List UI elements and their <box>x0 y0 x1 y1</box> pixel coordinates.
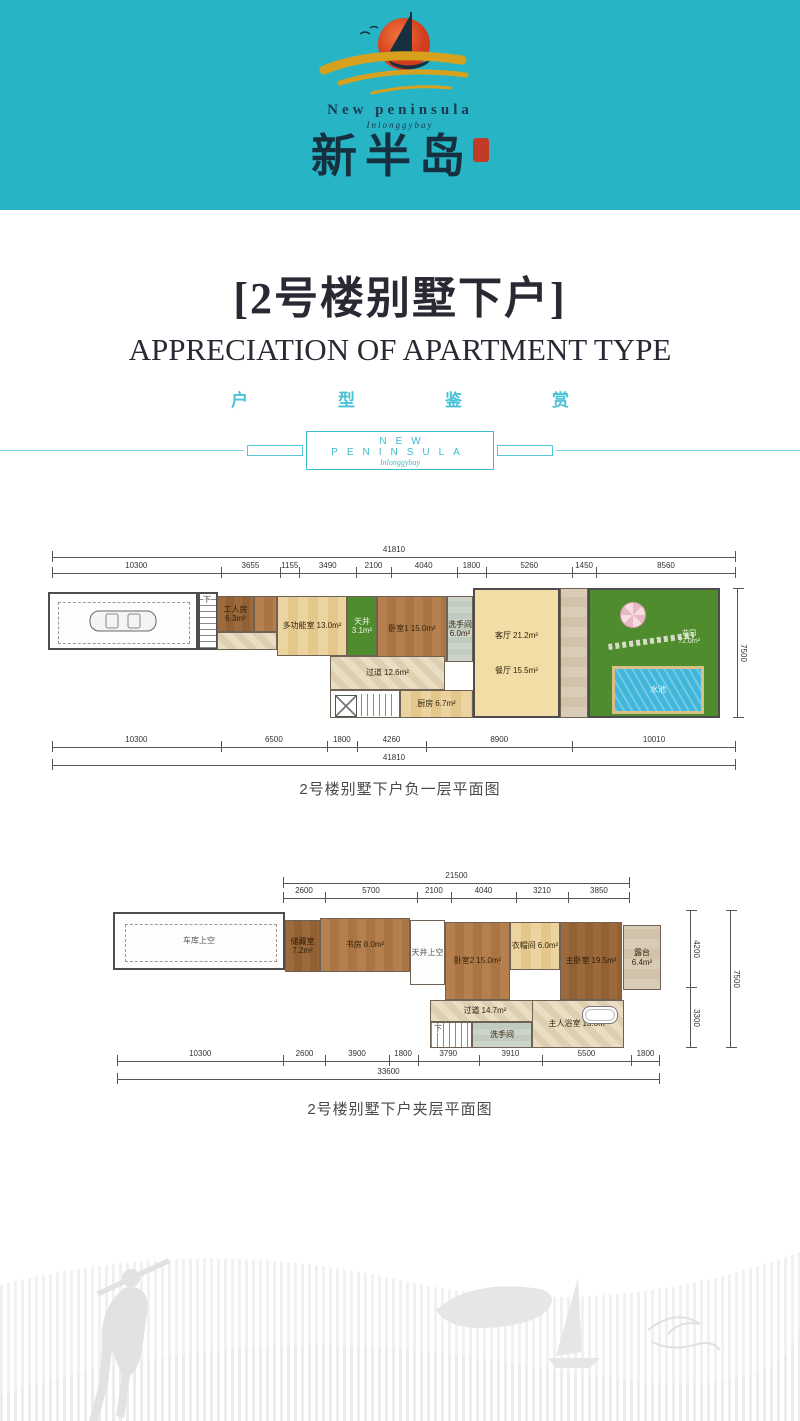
swimming-pool: 水池 <box>612 666 704 714</box>
room-name: 主卧室 <box>566 956 590 965</box>
dim-value: 5260 <box>486 561 572 570</box>
footer-waves-graphic <box>0 1230 800 1421</box>
dim-segment: 3790 <box>418 1050 479 1066</box>
dim-value: 1800 <box>389 1049 418 1058</box>
room-area: 6.0m² <box>538 941 558 950</box>
room-master-bedroom: 主卧室 19.5m² <box>560 922 622 1000</box>
room-area: 6.0m² <box>450 629 470 638</box>
dim-segment: 10300 <box>52 562 221 578</box>
room-washroom-1: 洗手间 6.0m² <box>447 596 473 662</box>
section-divider: NEW PENINSULA Inlonggybay <box>0 430 800 470</box>
pool-label: 水池 <box>650 685 666 694</box>
room-bedroom2: 卧室2 15.0m² <box>445 922 510 1000</box>
dim-value: 8900 <box>426 735 572 744</box>
dim-segment: 7500 <box>733 588 751 718</box>
dim-value: 3910 <box>479 1049 542 1058</box>
dim-segment: 1800 <box>389 1050 418 1066</box>
plan1-right-dim: 7500 <box>733 588 751 718</box>
room-area: 6.7m² <box>435 699 455 708</box>
dim-segment: 3910 <box>479 1050 542 1066</box>
dim-segment: 5500 <box>542 1050 631 1066</box>
dim-value: 3900 <box>325 1049 388 1058</box>
dim-segment: 8900 <box>426 736 572 752</box>
garage-parking-outline <box>58 602 190 644</box>
dim-value: 4260 <box>357 735 427 744</box>
divider-line-left <box>0 450 244 451</box>
brand-logo: New peninsula Inlonggybay 新半岛 <box>0 8 800 180</box>
dim-segment: 10010 <box>572 736 736 752</box>
dim-value: 3210 <box>516 886 568 895</box>
room-multifunction: 多功能室 13.0m² <box>277 596 347 656</box>
dim-segment: 4040 <box>391 562 457 578</box>
room-terrace: 露台 6.4m² <box>623 925 661 990</box>
dim-segment: 7500 <box>726 910 744 1048</box>
dim-value: 1155 <box>280 561 299 570</box>
dim-segment: 10300 <box>52 736 221 752</box>
plan1-caption: 2号楼别墅下户负一层平面图 <box>0 778 800 799</box>
brand-name-cn-row: 新半岛 <box>311 134 489 180</box>
dim-value: 4040 <box>451 886 516 895</box>
dim-value: 4200 <box>692 940 701 958</box>
red-seal-icon <box>473 138 489 162</box>
dim-segment: 1800 <box>327 736 356 752</box>
dim-segment: 33600 <box>117 1068 660 1084</box>
bathtub-icon <box>582 1006 618 1024</box>
plan2-top-dims: 260057002100404032103850 <box>283 887 630 903</box>
header-banner: New peninsula Inlonggybay 新半岛 <box>0 0 800 210</box>
dim-segment: 3655 <box>221 562 281 578</box>
room-garage <box>48 592 198 650</box>
dim-segment: 2100 <box>417 887 451 903</box>
dim-value: 4040 <box>391 561 457 570</box>
room-corridor-2: 过道 14.7m² <box>430 1000 540 1022</box>
plan1-floorplan: 下 工人房 6.3m² 多功能室 13.0m² 天井 3.1m² 卧室1 15.… <box>48 588 720 718</box>
dim-segment: 1450 <box>572 562 596 578</box>
dim-segment: 3490 <box>299 562 356 578</box>
room-name: 餐厅 <box>495 666 511 675</box>
brand-name-cn: 新半岛 <box>311 134 473 180</box>
room-area: 6.4m² <box>632 958 652 967</box>
dim-segment: 8560 <box>596 562 736 578</box>
room-area: 6.3m² <box>225 614 245 623</box>
brand-name-en: New peninsula <box>327 102 473 119</box>
plan1-bottom-dims: 10300650018004260890010010 <box>52 736 736 752</box>
stairs-icon <box>361 694 397 716</box>
dim-segment: 10300 <box>117 1050 283 1066</box>
room-area: 21.2m² <box>513 631 538 640</box>
dim-value: 1800 <box>327 735 356 744</box>
dim-value: 3790 <box>418 1049 479 1058</box>
dim-value: 1800 <box>457 561 486 570</box>
divider-badge-label: NEW PENINSULA <box>307 436 493 458</box>
plan2-right-dims: 42003300 <box>686 910 704 1048</box>
room-area: 3.1m² <box>352 626 372 635</box>
dim-value: 8560 <box>596 561 736 570</box>
room-name: 衣帽间 <box>512 941 536 950</box>
room-stairwell-1: 下 <box>198 592 218 650</box>
dim-value: 1800 <box>631 1049 660 1058</box>
room-kitchen: 厨房 6.7m² <box>400 690 473 718</box>
dim-segment: 3300 <box>686 987 704 1048</box>
dim-segment: 41810 <box>52 546 736 562</box>
dim-value: 2600 <box>283 886 325 895</box>
plan2-bottom-dims: 103002600390018003790391055001800 <box>117 1050 660 1066</box>
room-study: 书房 8.0m² <box>320 918 410 972</box>
room-corridor-1: 过道 12.6m² <box>330 656 445 690</box>
dim-value: 2100 <box>417 886 451 895</box>
dim-value: 7500 <box>732 970 741 988</box>
plan2-floorplan: 车库上空 储藏室 7.2m² 书房 8.0m² 天井上空 卧室2 15.0m² … <box>110 908 670 1048</box>
room-stairwell-2: 下 <box>430 1022 472 1048</box>
garden-label: 花园 72.0m² <box>678 630 700 647</box>
brochure-page: New peninsula Inlonggybay 新半岛 [2号楼别墅下户] … <box>0 0 800 1421</box>
room-area: 7.2m² <box>292 946 312 955</box>
room-area: 19.5m² <box>592 956 617 965</box>
room-area: 72.0m² <box>678 638 700 646</box>
room-storage: 储藏室 7.2m² <box>285 920 320 972</box>
dim-segment: 1800 <box>457 562 486 578</box>
room-area: 8.0m² <box>364 940 384 949</box>
dim-segment: 1155 <box>280 562 299 578</box>
elevator-icon <box>335 695 357 717</box>
plan2-total-bottom-dim: 33600 <box>117 1068 660 1084</box>
dim-segment: 2100 <box>356 562 390 578</box>
room-breakfast-nook <box>254 596 277 632</box>
umbrella-icon <box>620 602 646 628</box>
dim-value: 10300 <box>52 735 221 744</box>
room-area: 15.0m² <box>476 956 501 965</box>
room-name: 洗手间 <box>490 1030 514 1039</box>
room-name: 储藏室 <box>291 937 315 946</box>
room-master-bath: 主人浴室 13.0m² <box>532 1000 624 1048</box>
dim-segment: 3210 <box>516 887 568 903</box>
dim-value: 3300 <box>692 1009 701 1027</box>
room-name: 天井 <box>354 617 370 626</box>
room-garage-void: 车库上空 <box>113 912 285 970</box>
dim-segment: 4040 <box>451 887 516 903</box>
room-hall-tile <box>217 632 277 650</box>
dim-segment: 2600 <box>283 887 325 903</box>
room-name: 主人浴室 <box>549 1019 581 1028</box>
room-name: 天井上空 <box>412 948 444 957</box>
room-living-dining: 客厅 21.2m² 餐厅 15.5m² <box>473 588 560 718</box>
dim-segment: 4200 <box>686 910 704 987</box>
plan2-caption: 2号楼别墅下户夹层平面图 <box>0 1098 800 1119</box>
room-area: 12.6m² <box>384 668 409 677</box>
room-area: 14.7m² <box>482 1006 507 1015</box>
dim-segment: 5260 <box>486 562 572 578</box>
dim-value: 2600 <box>283 1049 325 1058</box>
dim-value: 41810 <box>52 545 736 554</box>
room-bedroom1: 卧室1 15.0m² <box>377 596 447 662</box>
room-name: 卧室2 <box>454 956 474 965</box>
divider-ornament-left <box>247 445 303 456</box>
room-worker: 工人房 6.3m² <box>217 596 254 632</box>
divider-badge-script: Inlonggybay <box>307 458 493 467</box>
dim-value: 10300 <box>117 1049 283 1058</box>
page-subtitle-en: APPRECIATION OF APARTMENT TYPE <box>0 332 800 368</box>
dim-value: 5500 <box>542 1049 631 1058</box>
plan2-right-total-dim: 7500 <box>726 910 744 1048</box>
room-atrium-void: 天井上空 <box>410 920 445 985</box>
divider-ornament-right <box>497 445 553 456</box>
plan1-total-top-dim: 41810 <box>52 546 736 562</box>
dim-value: 3850 <box>568 886 630 895</box>
dim-segment: 5700 <box>325 887 417 903</box>
room-name: 多功能室 <box>283 621 315 630</box>
room-area: 15.0m² <box>411 624 436 633</box>
dim-value: 2100 <box>356 561 390 570</box>
dim-segment: 4260 <box>357 736 427 752</box>
room-garden: 花园 72.0m² 水池 <box>588 588 720 718</box>
dim-segment: 3850 <box>568 887 630 903</box>
room-name: 客厅 <box>495 631 511 640</box>
living-label: 客厅 21.2m² <box>495 631 538 640</box>
dim-value: 33600 <box>117 1067 660 1076</box>
dim-value: 10300 <box>52 561 221 570</box>
room-name: 车库上空 <box>183 936 215 945</box>
dim-value: 10010 <box>572 735 736 744</box>
room-washroom-2: 洗手间 <box>472 1022 532 1048</box>
divider-badge: NEW PENINSULA Inlonggybay <box>306 431 494 470</box>
room-name: 工人房 <box>224 605 248 614</box>
footer-watermark <box>0 1230 800 1421</box>
dim-segment: 1800 <box>631 1050 660 1066</box>
room-name: 花园 <box>682 630 696 638</box>
room-area: 13.0m² <box>317 621 342 630</box>
room-name: 卧室1 <box>388 624 408 633</box>
room-cloakroom: 衣帽间 6.0m² <box>510 922 560 970</box>
dim-segment: 2600 <box>283 1050 325 1066</box>
stair-down-label: 下 <box>203 595 211 604</box>
dim-segment: 6500 <box>221 736 327 752</box>
dim-segment: 41810 <box>52 754 736 770</box>
brand-script-text: Inlonggybay <box>367 120 434 130</box>
room-name: 洗手间 <box>448 620 472 629</box>
dim-value: 1450 <box>572 561 596 570</box>
room-name: 露台 <box>634 948 650 957</box>
plan1-total-bottom-dim: 41810 <box>52 754 736 770</box>
dim-segment: 3900 <box>325 1050 388 1066</box>
room-area: 15.5m² <box>513 666 538 675</box>
room-name: 过道 <box>366 668 382 677</box>
dim-value: 7500 <box>739 644 748 662</box>
room-name: 过道 <box>464 1006 480 1015</box>
sun-sailboat-icon <box>300 8 500 100</box>
dim-value: 3655 <box>221 561 281 570</box>
room-name: 书房 <box>346 940 362 949</box>
dining-label: 餐厅 15.5m² <box>495 666 538 675</box>
plan1-top-dims: 1030036551155349021004040180052601450856… <box>52 562 736 578</box>
page-title: [2号楼别墅下户] <box>0 262 800 326</box>
stair-down-label: 下 <box>434 1024 442 1033</box>
room-name: 厨房 <box>417 699 433 708</box>
room-courtyard: 天井 3.1m² <box>347 596 377 656</box>
divider-line-right <box>556 450 800 451</box>
dim-value: 5700 <box>325 886 417 895</box>
dim-value: 21500 <box>283 871 630 880</box>
room-foyer <box>560 588 588 718</box>
dim-value: 3490 <box>299 561 356 570</box>
dim-value: 6500 <box>221 735 327 744</box>
dim-value: 41810 <box>52 753 736 762</box>
room-stair-elevator <box>330 690 400 718</box>
page-subtitle-cn: 户型鉴赏 <box>0 386 800 411</box>
